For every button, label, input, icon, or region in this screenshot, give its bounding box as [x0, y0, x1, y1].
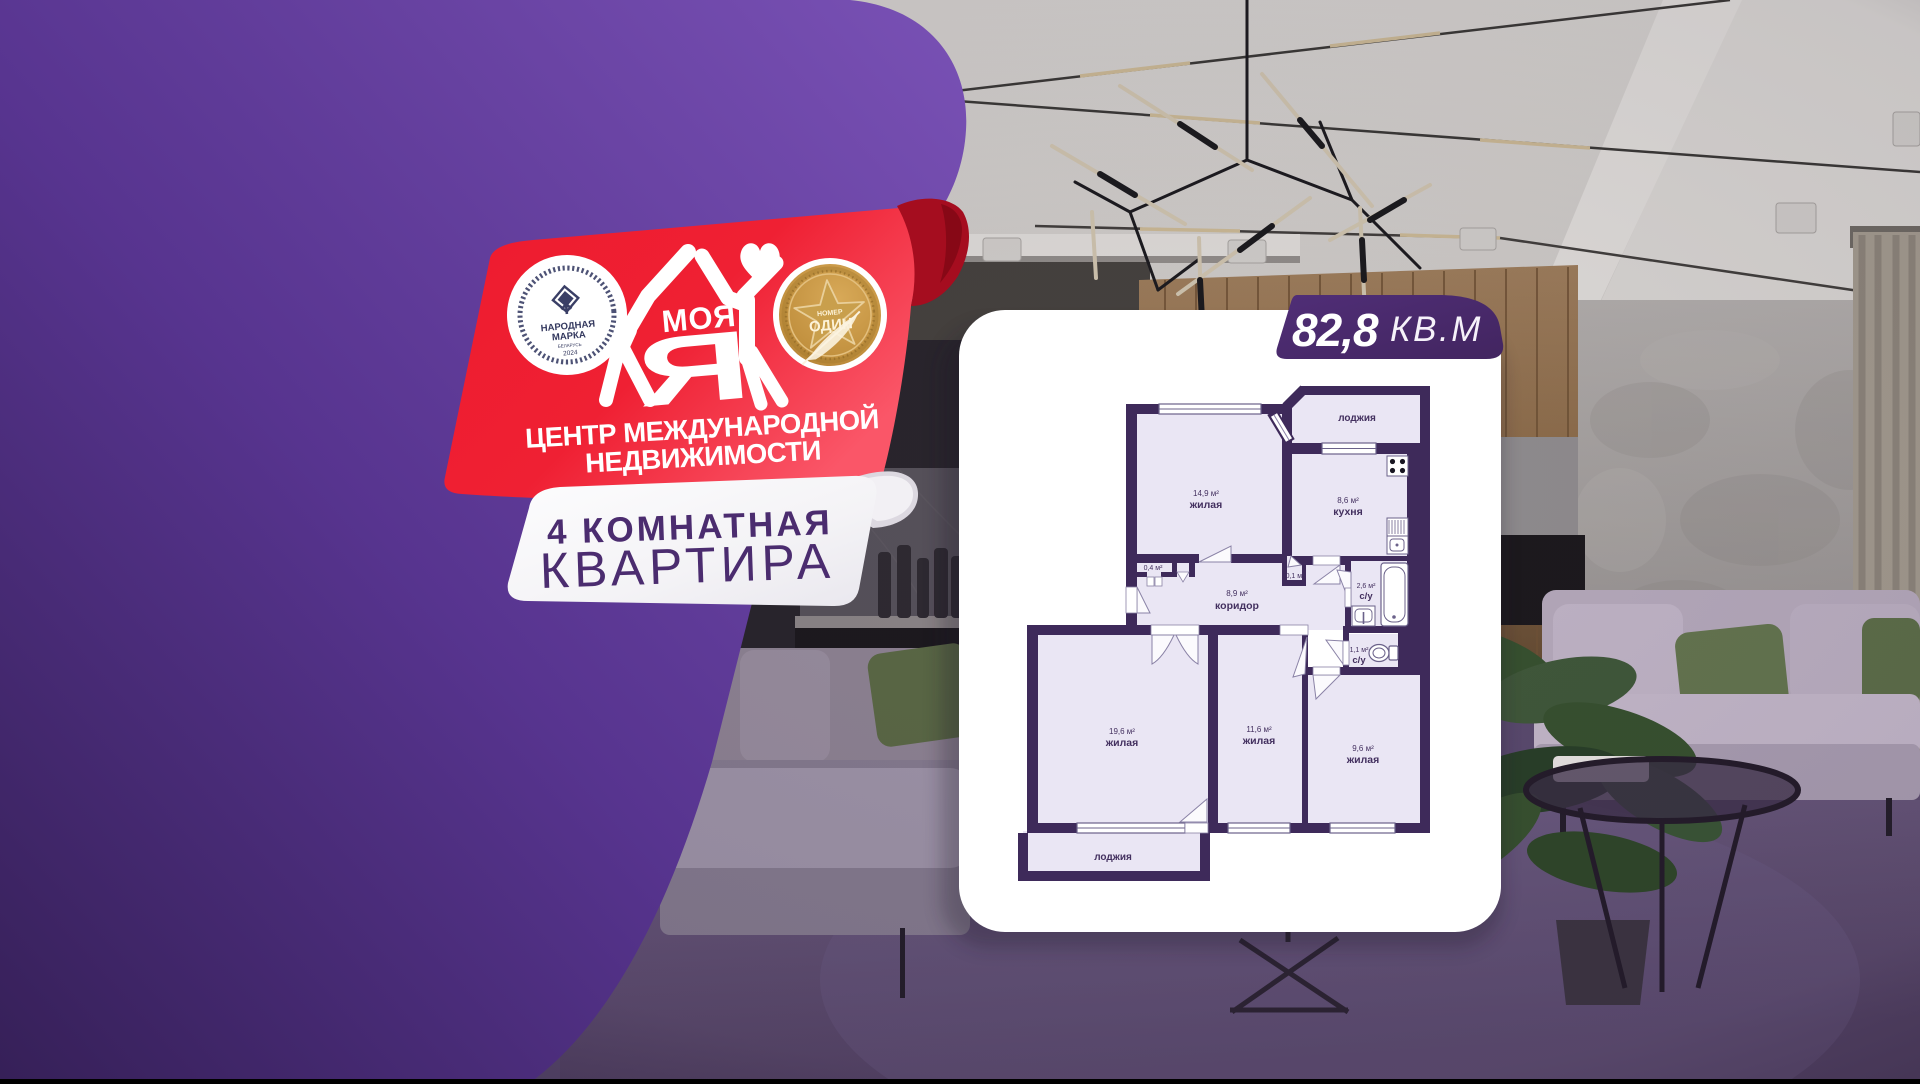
svg-text:лоджия: лоджия [1338, 413, 1376, 424]
svg-text:0,1 м²: 0,1 м² [1286, 573, 1305, 580]
svg-text:жилая: жилая [1346, 754, 1380, 766]
svg-text:коридор: коридор [1215, 600, 1259, 612]
svg-text:11,6 м²: 11,6 м² [1246, 725, 1272, 734]
svg-text:2,6 м²: 2,6 м² [1357, 583, 1376, 590]
svg-text:с/у: с/у [1352, 655, 1366, 666]
svg-text:жилая: жилая [1242, 735, 1276, 747]
svg-text:КВАРТИРА: КВАРТИРА [539, 533, 836, 599]
svg-text:82,8: 82,8 [1292, 304, 1379, 356]
svg-text:8,6 м²: 8,6 м² [1337, 496, 1359, 505]
svg-text:КВ.М: КВ.М [1390, 310, 1483, 349]
svg-text:0,4 м²: 0,4 м² [1144, 565, 1163, 572]
svg-text:2024: 2024 [563, 349, 578, 357]
svg-text:лоджия: лоджия [1094, 852, 1132, 863]
svg-text:1,1 м²: 1,1 м² [1350, 647, 1369, 654]
svg-text:Я: Я [633, 310, 755, 428]
svg-text:8,9 м²: 8,9 м² [1226, 589, 1248, 598]
svg-text:с/у: с/у [1359, 591, 1373, 602]
svg-text:жилая: жилая [1189, 499, 1223, 511]
svg-text:14,9 м²: 14,9 м² [1193, 489, 1219, 498]
svg-text:жилая: жилая [1105, 737, 1139, 749]
svg-text:9,6 м²: 9,6 м² [1352, 744, 1374, 753]
svg-text:19,6 м²: 19,6 м² [1109, 727, 1135, 736]
svg-text:кухня: кухня [1333, 506, 1363, 518]
